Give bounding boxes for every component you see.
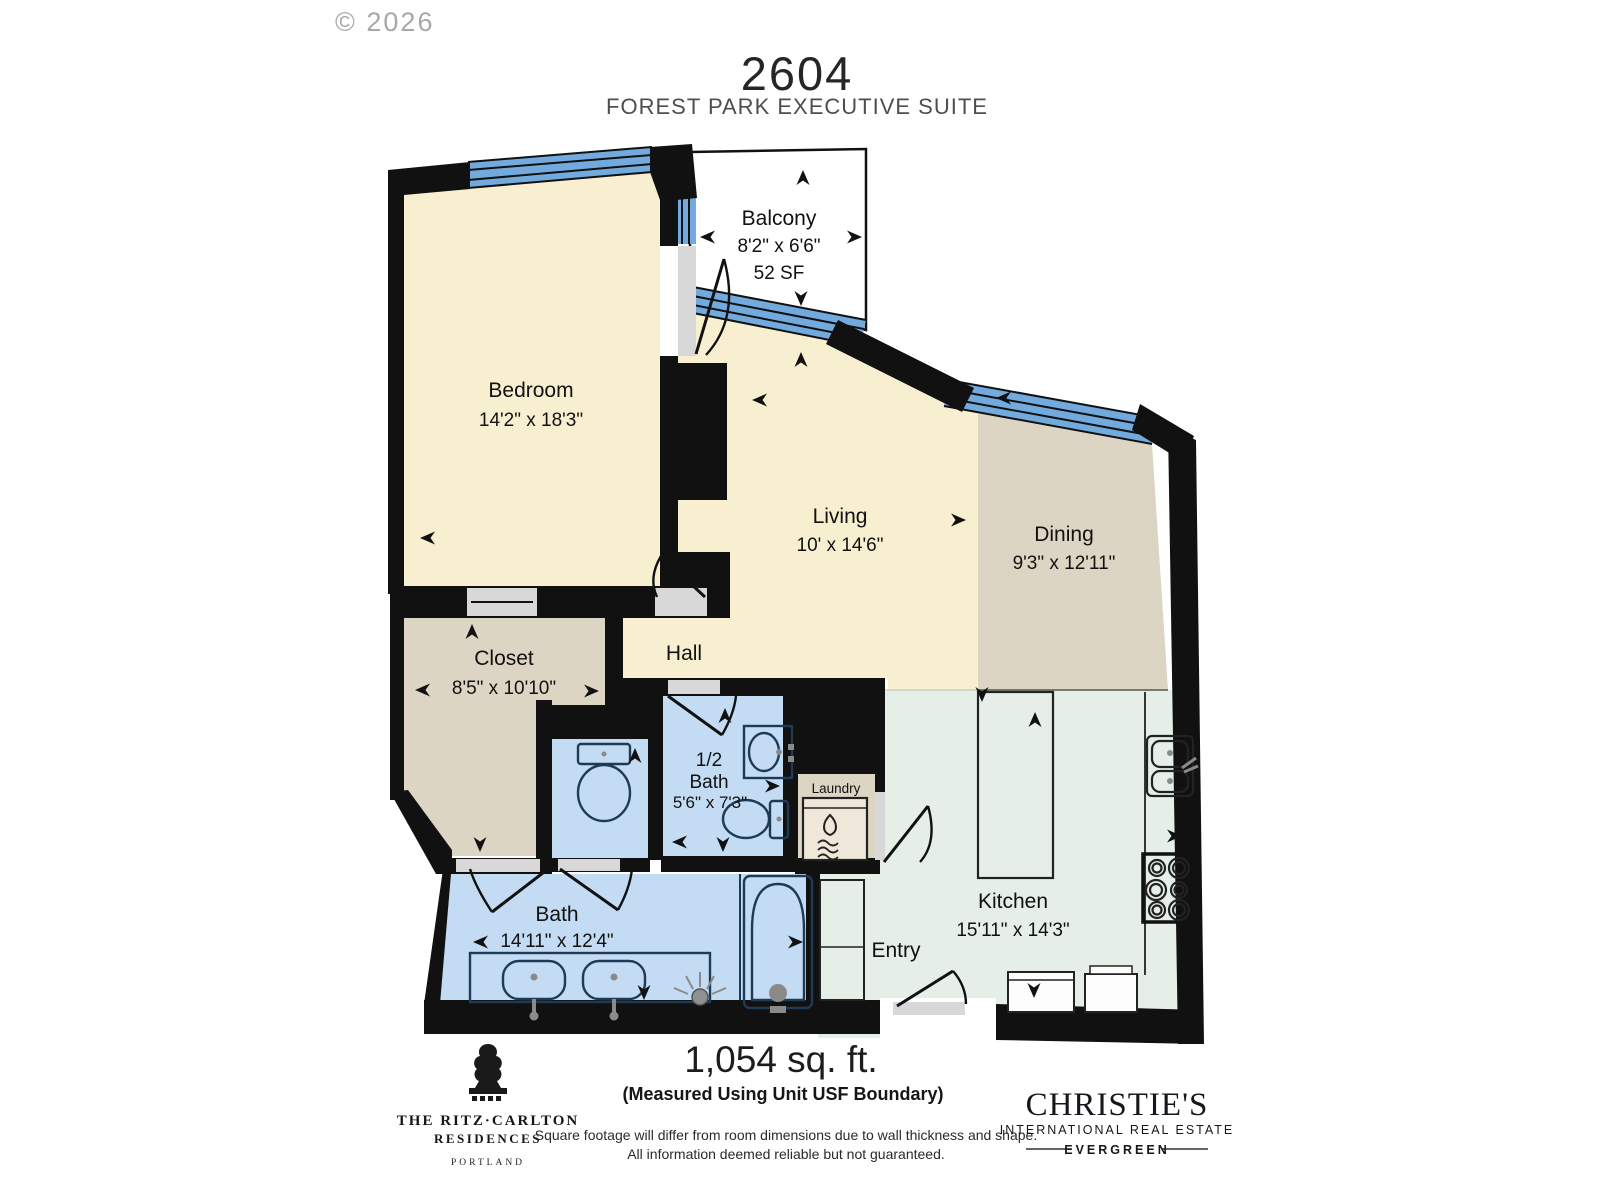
dining-dimensions: 9'3" x 12'11"	[1013, 553, 1116, 574]
bath-label: Bath	[535, 903, 578, 926]
living-dimensions: 10' x 14'6"	[797, 535, 884, 556]
measurement-note: (Measured Using Unit USF Boundary)	[622, 1084, 943, 1104]
bath-dimensions: 14'11" x 12'4"	[500, 931, 613, 952]
half-bath-door-threshold	[668, 680, 720, 694]
bath-door-threshold	[456, 859, 540, 872]
christies-subtitle: INTERNATIONAL REAL ESTATE	[1000, 1123, 1235, 1137]
suite-name: FOREST PARK EXECUTIVE SUITE	[606, 94, 988, 119]
bedroom-label: Bedroom	[488, 379, 573, 402]
balcony-door-window	[676, 197, 696, 244]
washer-dryer-icon	[803, 798, 867, 860]
balcony-dimensions: 8'2" x 6'6"	[737, 236, 820, 257]
unit-number: 2604	[741, 47, 854, 100]
floor-plan-page: © 2026 2604 FOREST PARK EXECUTIVE SUITE	[0, 0, 1600, 1200]
total-area-label: 1,054 sq. ft.	[684, 1039, 877, 1080]
balcony-door-threshold	[678, 246, 696, 356]
ritz-carlton-logo: THE RITZ·CARLTON RESIDENCES PORTLAND	[397, 1044, 579, 1168]
floor-plan-canvas: © 2026 2604 FOREST PARK EXECUTIVE SUITE	[0, 0, 1600, 1200]
ritz-carlton-name: THE RITZ·CARLTON	[397, 1113, 579, 1129]
kitchen-label: Kitchen	[978, 890, 1048, 913]
balcony-label: Balcony	[742, 207, 817, 230]
christies-name: CHRISTIE'S	[1026, 1087, 1209, 1123]
entry-door-threshold	[893, 1002, 965, 1015]
closet-label: Closet	[474, 647, 534, 670]
closet-dimensions: 8'5" x 10'10"	[452, 678, 556, 699]
footer: 1,054 sq. ft. (Measured Using Unit USF B…	[535, 1039, 1037, 1162]
balcony-area-label: 52 SF	[754, 263, 805, 284]
ritz-carlton-residences: RESIDENCES	[434, 1131, 542, 1146]
bedroom-dimensions: 14'2" x 18'3"	[479, 410, 583, 431]
half-bath-label-line1: 1/2	[696, 750, 722, 771]
dining-label: Dining	[1034, 523, 1094, 546]
ritz-carlton-crest-icon	[469, 1044, 507, 1101]
dining-floor	[978, 408, 1168, 690]
entry-label: Entry	[871, 939, 921, 962]
kitchen-appliance-dishwasher	[1008, 972, 1074, 1012]
ritz-carlton-city: PORTLAND	[451, 1158, 525, 1168]
disclaimer-line1: Square footage will differ from room dim…	[535, 1127, 1037, 1143]
kitchen-appliance-oven	[1085, 966, 1137, 1012]
disclaimer-line2: All information deemed reliable but not …	[627, 1146, 945, 1162]
hall-label: Hall	[666, 642, 702, 665]
christies-brokerage: EVERGREEN	[1064, 1143, 1170, 1157]
kitchen-dimensions: 15'11" x 14'3"	[956, 920, 1069, 941]
half-bath-label-line2: Bath	[689, 772, 728, 793]
laundry-opening	[875, 792, 885, 860]
laundry-label: Laundry	[812, 781, 861, 796]
christies-logo: CHRISTIE'S INTERNATIONAL REAL ESTATE EVE…	[1000, 1087, 1235, 1157]
wc-door-threshold	[558, 859, 620, 871]
half-bath-dimensions: 5'6" x 7'3"	[673, 793, 747, 812]
copyright-watermark: © 2026	[335, 7, 434, 37]
living-label: Living	[813, 505, 868, 528]
